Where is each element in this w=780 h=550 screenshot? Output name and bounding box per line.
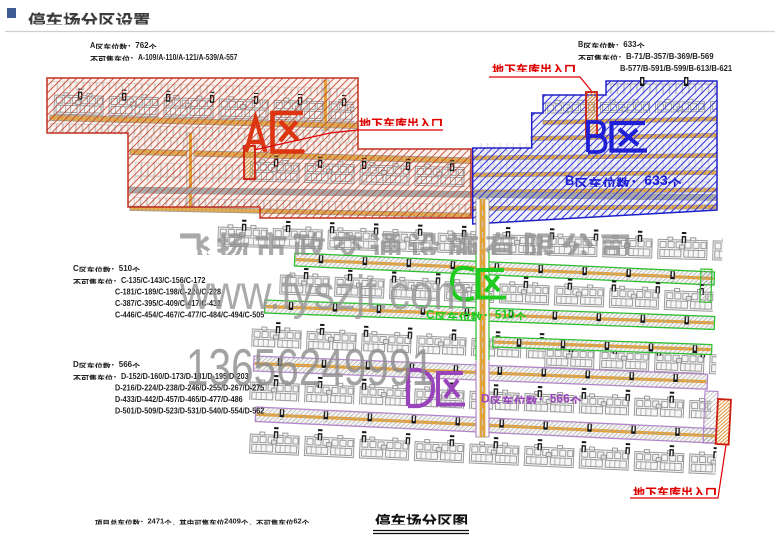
svg-text:B: B [578,40,584,49]
svg-text:D-433/D-442/D-457/D-465/D-477/: D-433/D-442/D-457/D-465/D-477/D-486 [115,395,243,404]
svg-text:2409: 2409 [224,517,241,526]
svg-text:510: 510 [119,264,133,273]
svg-text:B-71/B-357/B-369/B-569: B-71/B-357/B-369/B-569 [626,52,714,61]
svg-text:D: D [481,391,490,405]
svg-text:D: D [73,360,79,369]
svg-text:www.fyszjt.com: www.fyszjt.com [179,265,469,319]
svg-text:B: B [565,172,574,188]
svg-text:62: 62 [293,517,301,526]
svg-text:13656249991: 13656249991 [186,338,434,396]
svg-text:B-577/B-591/B-599/B-613/B-621: B-577/B-591/B-599/B-613/B-621 [620,64,733,73]
svg-text:633: 633 [623,40,637,49]
svg-text:566: 566 [119,360,133,369]
svg-text:510: 510 [495,307,515,321]
svg-text:633: 633 [644,172,668,188]
svg-text:A: A [90,41,96,50]
svg-text:566: 566 [550,391,570,405]
svg-text:D-501/D-509/D-523/D-531/D-540/: D-501/D-509/D-523/D-531/D-540/D-554/D-56… [115,406,265,415]
svg-text:C: C [73,264,79,273]
svg-text:762: 762 [135,41,149,50]
svg-text:2471: 2471 [148,517,165,526]
svg-text:A-109/A-110/A-121/A-539/A-557: A-109/A-110/A-121/A-539/A-557 [138,53,238,62]
